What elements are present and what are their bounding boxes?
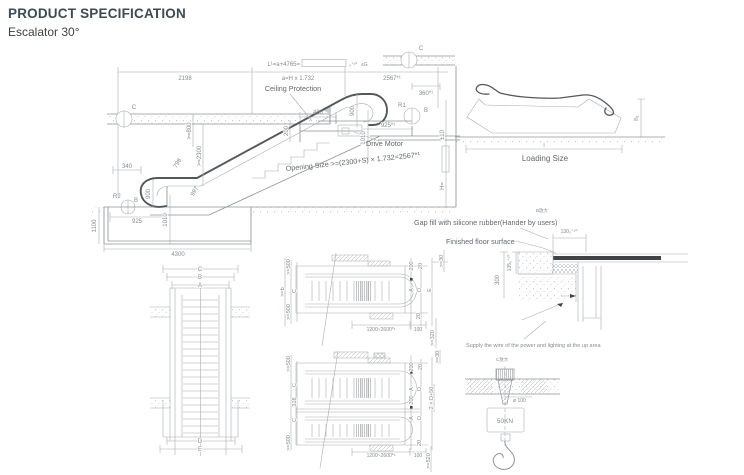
- pl-ge500-bot: >=500: [286, 435, 292, 451]
- pu-ge500-top: >=500: [286, 259, 292, 275]
- pl-step-rungs-1: [312, 378, 389, 398]
- pl-dim-c2: C: [292, 418, 298, 422]
- floor-plate: [553, 256, 661, 260]
- plan-view-upper: >=500 C >=500 >=b 200 20 A D E 20 1200~2…: [280, 250, 448, 348]
- concrete-lower: [518, 276, 576, 302]
- pu-step-rungs: [312, 281, 389, 301]
- ceiling-protection-label: Ceiling Protection: [265, 84, 321, 93]
- dim-400: 400: [313, 110, 324, 116]
- dim-997: 997: [190, 185, 201, 197]
- plan-view-left: C B A D E: [150, 265, 250, 456]
- hook-slab-hatch-left: [467, 380, 493, 393]
- ceiling-slab-band: [107, 114, 330, 124]
- dim-blank-box: [302, 60, 346, 67]
- concrete-upper: [518, 252, 553, 274]
- hook-connector: [501, 434, 510, 441]
- dim-925-left: 925: [132, 219, 143, 225]
- dim-l-formula: L¹=a+4765=: [267, 62, 300, 68]
- dim-900-left: 900: [146, 188, 152, 199]
- floor-hatch-left: [90, 208, 105, 214]
- dim-798: 798: [173, 157, 184, 169]
- load-label: 50KN: [497, 418, 514, 425]
- pl-dim-a2: A: [409, 416, 415, 420]
- dim-pm10: ±10: [440, 129, 446, 140]
- pl-comb-block-2: [356, 424, 372, 437]
- loading-dim-h1: h₁: [634, 115, 640, 120]
- pl-dim-20-bot: 20: [417, 440, 423, 446]
- pl-ge30: >=30: [435, 351, 441, 364]
- marker-c-left-label: C: [132, 105, 137, 111]
- pl-dim-100: 100: [414, 453, 423, 459]
- hook-detail: ø 100 50KN: [465, 366, 560, 469]
- pu-dim-d: D: [417, 288, 423, 292]
- plan-left-floor-hatch-4: [231, 398, 250, 408]
- pl-section-dot-2: [410, 406, 413, 409]
- plan-left-structure: [163, 288, 238, 456]
- pu-range: 1200~2600*¹: [367, 327, 396, 333]
- detail-marker-c-top: [401, 52, 417, 68]
- pl-hatch-dark: [374, 353, 385, 358]
- pl-comb-block-1: [356, 378, 372, 398]
- gap-fill-note: Gap fill with silicone rubber(Hander by …: [414, 218, 557, 227]
- rubber-strip-2: [552, 269, 578, 273]
- pu-dim-c: C: [292, 289, 298, 293]
- product-specification-page: { "header": {"title": "PRODUCT SPECIFICA…: [0, 0, 744, 475]
- plan-left-dim-c: C: [198, 267, 203, 273]
- h-dim-blank-box: [442, 146, 449, 172]
- plan-left-floor-hatch-3: [150, 398, 170, 408]
- dim-1010-top: 1010: [361, 131, 367, 145]
- dim-200-riser: 200: [284, 125, 290, 136]
- pl-range: 1200~2600*¹: [367, 453, 396, 459]
- marker-b-top-label: B: [424, 108, 428, 114]
- loading-handrail: [476, 85, 613, 116]
- dim-a-formula: a=H x 1.732: [282, 76, 315, 82]
- hook-slab-hatch-right: [521, 380, 547, 393]
- pl-step-rungs-2: [312, 424, 389, 437]
- pu-dim-20-bot: 20: [416, 313, 422, 319]
- pu-dim-100: 100: [414, 327, 423, 333]
- dim-2198: 2198: [178, 76, 192, 82]
- loading-ground-hatch: [455, 138, 665, 143]
- pl-dim-d2: D: [417, 416, 423, 420]
- dim-l-suffix: ≤G: [361, 62, 368, 68]
- detail-marker-c-left: [116, 110, 132, 128]
- pu-hatch-bottom: [370, 313, 393, 319]
- plan-view-lower: >=500 C 318 C >=500 200 20 A D 200 A D 2…: [286, 350, 441, 472]
- marker-r2-label: R2: [113, 194, 121, 200]
- loading-dim-lines: [466, 99, 645, 153]
- pu-dim-e: E: [427, 288, 433, 292]
- dim-340: 340: [122, 164, 133, 170]
- marker-r1-label: R1: [398, 103, 406, 109]
- elevation-drawing: L¹=a+4765= ₀⁺¹⁰ ≤G 2198 a=H x 1.732 2567…: [90, 46, 460, 258]
- pu-ge320: >=320: [430, 330, 436, 346]
- loading-truss-outline: [467, 99, 621, 133]
- loading-dim-i: i: [543, 143, 544, 149]
- pu-hatch-step: [368, 261, 390, 266]
- pl-dim-a1: A: [409, 387, 415, 391]
- dim-130: 130₀⁺¹⁰: [561, 229, 578, 235]
- pl-total: 2 × D+50: [429, 387, 435, 410]
- drive-motor-label: Drive Motor: [366, 139, 404, 148]
- finished-floor-note: Finished floor surface: [446, 237, 515, 246]
- plan-left-floor-hatch-1: [150, 307, 170, 317]
- dim-phi-100: ø 100: [513, 398, 526, 404]
- dim-4300: 4300: [171, 252, 185, 258]
- b-zoom-label: B放大: [536, 207, 549, 214]
- pl-dim-c1: C: [292, 383, 298, 387]
- dim-1100: 1100: [92, 219, 98, 233]
- pl-ge520: >=520: [426, 453, 432, 469]
- pu-break-line: [322, 253, 336, 346]
- dim-ge800: >=800: [187, 122, 193, 140]
- drive-motor-box: [338, 125, 362, 136]
- pl-hatch-step: [368, 358, 390, 363]
- marker-c-top-label: C: [419, 46, 424, 52]
- plan-left-hatch-edges: [150, 307, 250, 408]
- plan-left-dim-d: D: [198, 439, 203, 445]
- pl-dim-200-mid: 200: [409, 395, 415, 404]
- pu-dim-a: A: [409, 288, 415, 292]
- marker-b-low-label: B: [134, 198, 138, 204]
- rubber-strip-1: [552, 264, 578, 268]
- pu-dim-20-top: 20: [418, 263, 424, 269]
- supply-note: Supply the wire of the power and lightin…: [466, 343, 601, 349]
- c-zoom-label: C放大: [496, 356, 509, 363]
- dim-h: H=: [440, 182, 446, 190]
- pu-ge-outer: >=b: [280, 287, 286, 296]
- plan-left-dim-e: E: [198, 447, 202, 453]
- upper-ceiling-band: [383, 56, 455, 65]
- detail-marker-b-top: [404, 108, 420, 124]
- floor-edge-detail: 130₀⁺¹⁰ 135₀⁺¹⁰ 300: [495, 229, 688, 330]
- pl-dim-200-top: 200: [409, 362, 415, 371]
- plan-left-dim-a: A: [198, 283, 202, 289]
- dim-360: 360*¹: [419, 91, 433, 97]
- pu-ge30: >=30: [439, 255, 445, 268]
- pl-hatch-bottom: [370, 445, 393, 451]
- pl-dim-20-top: 20: [418, 364, 424, 370]
- pu-ge500-bot: >=500: [286, 304, 292, 320]
- dim-1010-left: 1010: [163, 213, 169, 227]
- loading-size-label: Loading Size: [522, 154, 569, 163]
- pl-dim-d1: D: [417, 387, 423, 391]
- pu-dim-200: 200: [409, 261, 415, 270]
- opening-size-label: Opening Size >=(2300+S) × 1.732=2567*¹: [285, 150, 421, 173]
- specification-drawing: L¹=a+4765= ₀⁺¹⁰ ≤G 2198 a=H x 1.732 2567…: [0, 0, 744, 475]
- pu-section-dot: [410, 278, 413, 281]
- loading-size-drawing: i h₁ Loading Size: [455, 85, 665, 163]
- dim-300: 300: [495, 274, 501, 285]
- dim-925-top: 925*¹: [381, 123, 395, 129]
- pl-break-line: [320, 351, 338, 468]
- plan-left-floor-hatch-2: [231, 307, 250, 317]
- pl-ge500-top: >=500: [286, 356, 292, 372]
- pl-dim-318: 318: [292, 397, 298, 406]
- floor-hatch-right: [252, 208, 456, 214]
- pl-hatch-top: [334, 352, 368, 358]
- dim-l-tolerance: ₀⁺¹⁰: [349, 62, 357, 68]
- plan-left-dim-lines: [160, 265, 242, 453]
- pu-comb-block: [356, 281, 372, 301]
- hook-shape: [493, 441, 514, 469]
- dim-ge2300: >=2300: [197, 145, 203, 166]
- dim-900-top: 900: [350, 105, 356, 116]
- plan-left-dim-b: B: [198, 275, 202, 281]
- pu-hatch-top: [332, 255, 368, 261]
- dim-135: 135₀⁺¹⁰: [507, 255, 513, 272]
- dim-2567: 2567*¹: [383, 76, 401, 82]
